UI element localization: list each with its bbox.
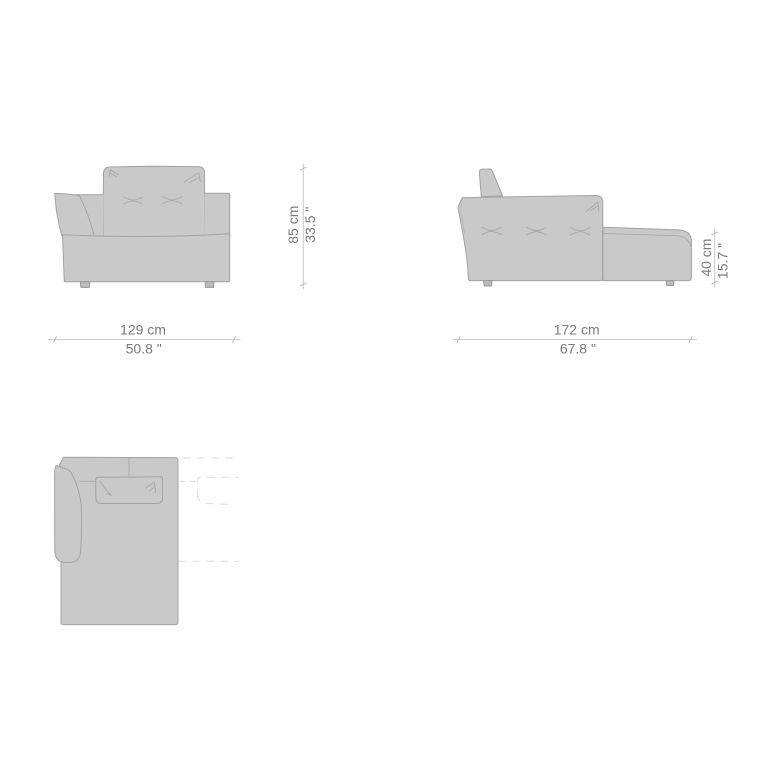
svg-text:129 cm: 129 cm [120, 322, 166, 338]
svg-text:85 cm: 85 cm [285, 206, 301, 244]
svg-text:172 cm: 172 cm [554, 322, 600, 338]
svg-text:15.7 ": 15.7 " [714, 243, 730, 279]
svg-text:40 cm: 40 cm [698, 239, 714, 277]
svg-text:50.8 ": 50.8 " [126, 341, 162, 357]
svg-text:33.5 ": 33.5 " [302, 207, 318, 243]
svg-text:67.8 ": 67.8 " [560, 341, 596, 357]
